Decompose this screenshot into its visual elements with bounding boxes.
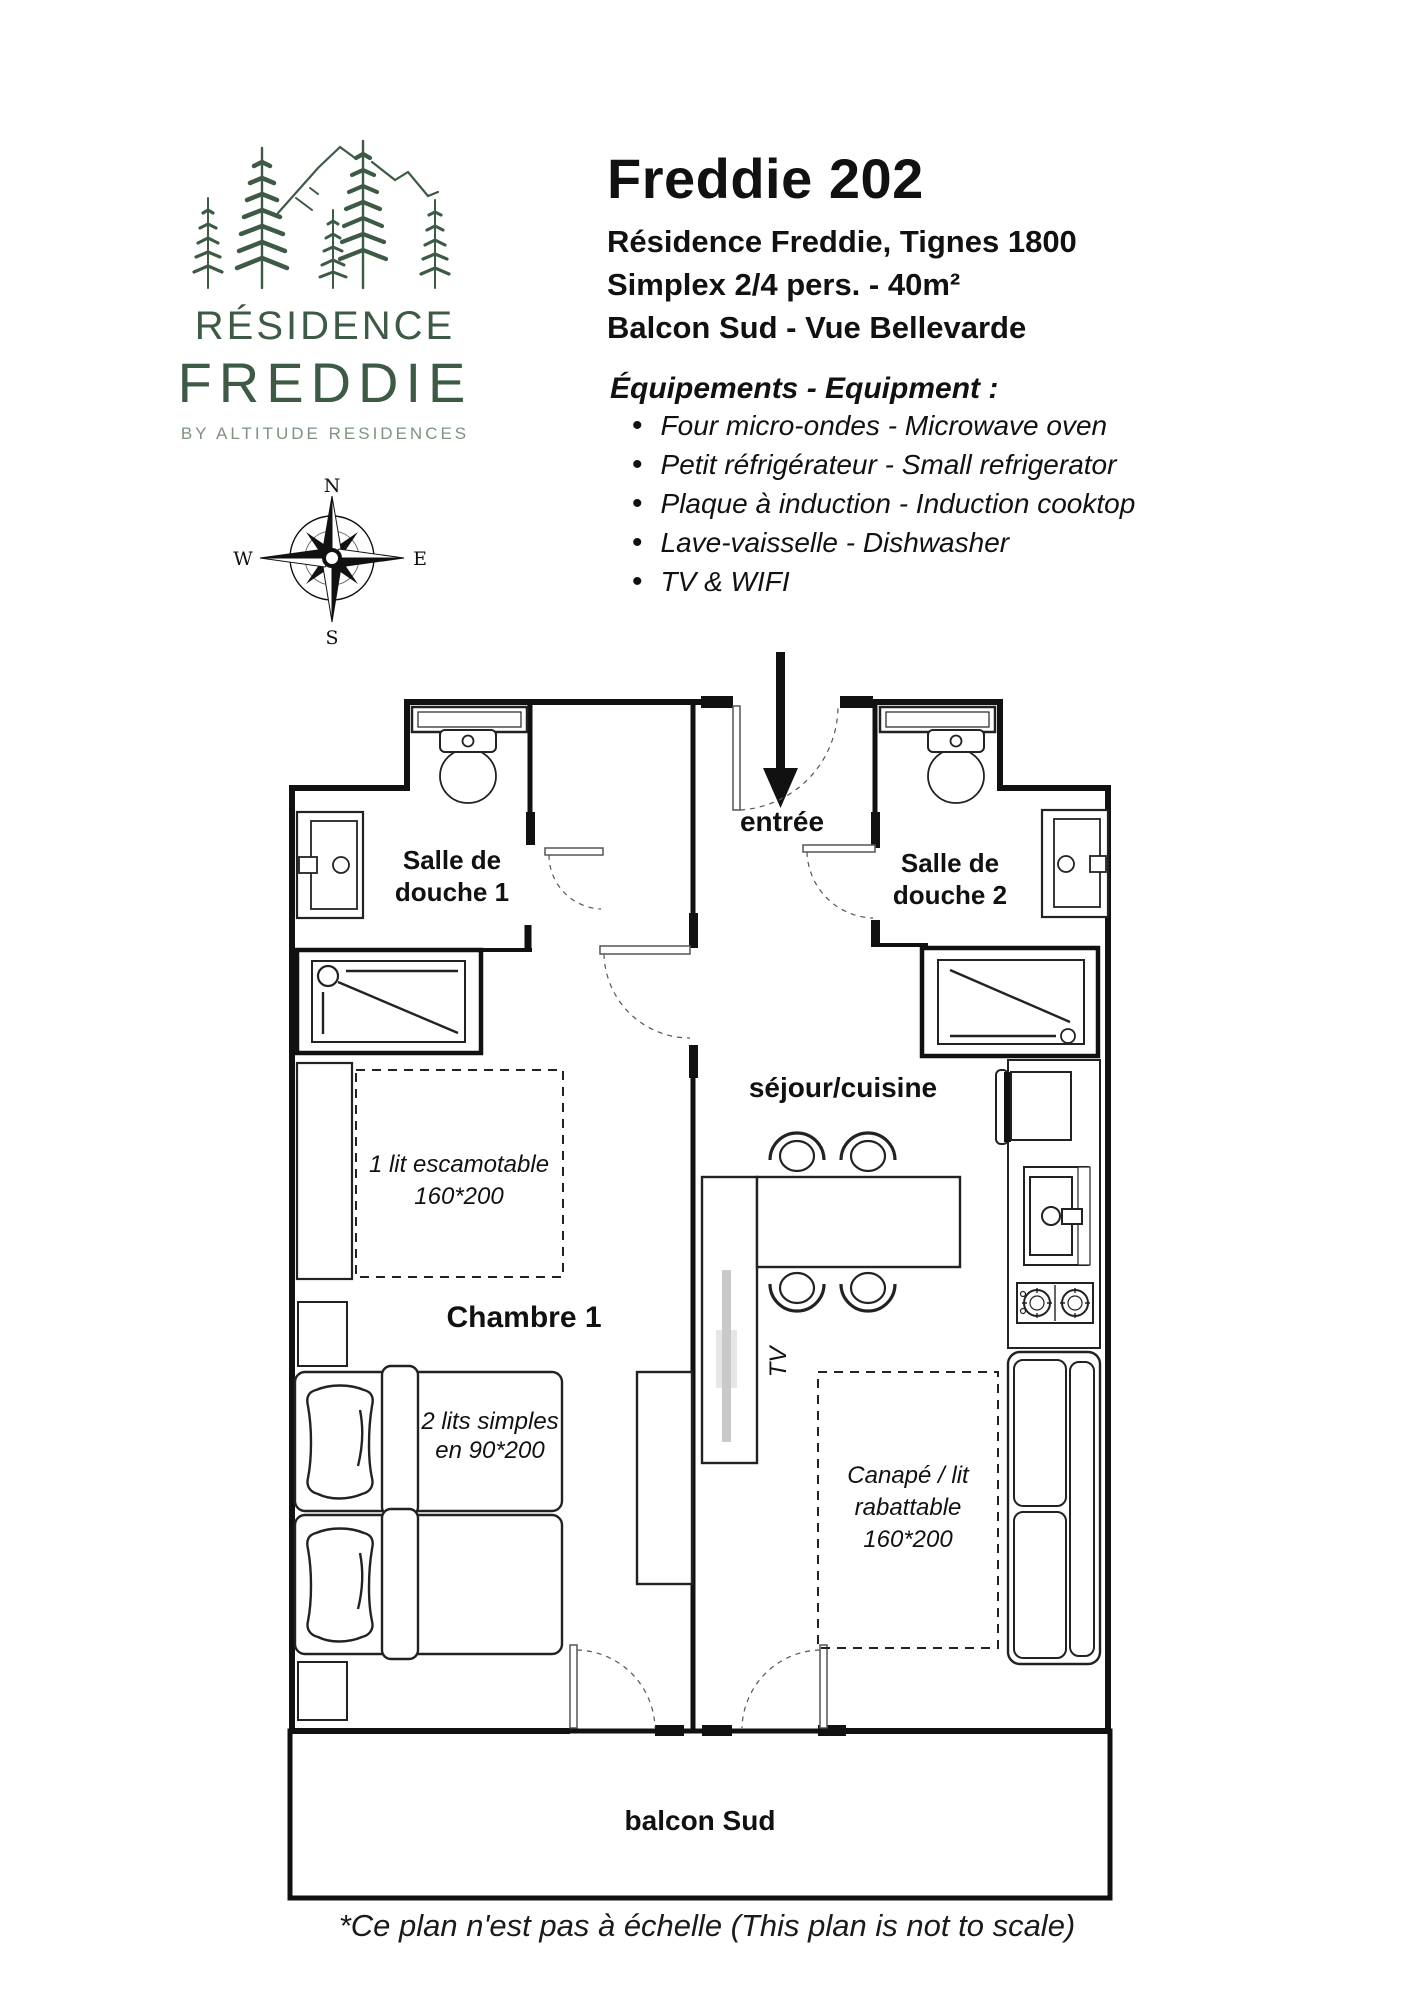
label-balcon-sud: balcon Sud (625, 1805, 776, 1836)
tv-cabinet (702, 1177, 757, 1463)
sink-1 (297, 812, 363, 918)
pillow (307, 1529, 372, 1642)
tv-screen (722, 1270, 731, 1442)
label-sejour-cuisine: séjour/cuisine (749, 1072, 937, 1103)
label-douche2-line2: douche 2 (893, 880, 1007, 910)
douche2-door (803, 845, 875, 918)
chair-icon (841, 1273, 895, 1311)
shower-1 (297, 950, 481, 1053)
compass-center-ring (324, 550, 340, 566)
label-douche1-line2: douche 1 (395, 877, 509, 907)
chambre-door (600, 946, 690, 1038)
scale-disclaimer: *Ce plan n'est pas à échelle (This plan … (0, 1908, 1414, 1944)
shower-2 (922, 948, 1098, 1056)
floorplan-drawing: N W E S (0, 0, 1414, 2000)
mountain-slope-marks (296, 188, 318, 210)
single-bed-2 (295, 1509, 562, 1659)
kitchen (996, 1060, 1100, 1348)
label-canape-line2: rabattable (855, 1494, 962, 1521)
balcony-door-chambre (570, 1645, 655, 1728)
wardrobe (297, 1063, 352, 1279)
label-douche2-line1: Salle de (901, 848, 999, 878)
shelf-inner (886, 712, 989, 727)
label-douche1-line1: Salle de (403, 845, 501, 875)
compass-west-label: W (233, 548, 253, 570)
label-canape-line3: 160*200 (863, 1526, 953, 1553)
label-canape-line1: Canapé / lit (847, 1462, 970, 1489)
label-lits-simples-line1: 2 lits simples (420, 1408, 558, 1435)
label-lit-escamotable-line2: 160*200 (414, 1183, 504, 1210)
sink-2 (1042, 810, 1108, 917)
logo-trees-mountain-illustration (194, 141, 449, 288)
induction-cooktop (1017, 1283, 1093, 1323)
sofa (1008, 1352, 1100, 1664)
chair-icon (770, 1133, 824, 1171)
label-tv: TV (765, 1345, 792, 1378)
label-entree: entrée (740, 806, 824, 837)
dining-table (757, 1177, 960, 1267)
compass-east-label: E (413, 548, 427, 570)
balcony-door-sejour (742, 1645, 827, 1728)
floorplan-page: RÉSIDENCE FREDDIE BY ALTITUDE RESIDENCES… (0, 0, 1414, 2000)
chair-icon (841, 1133, 895, 1171)
compass-north-label: N (324, 475, 341, 497)
entrance-arrow-icon (763, 652, 798, 808)
mountain-ridge-right (372, 162, 438, 196)
fridge (996, 1070, 1071, 1144)
mountain-ridge-left (278, 147, 355, 213)
shelf-inner (418, 712, 521, 727)
toilet-2 (928, 730, 984, 803)
closet (637, 1372, 692, 1584)
toilet-1 (440, 730, 496, 803)
compass-south-label: S (325, 627, 338, 649)
chair-icon (770, 1273, 824, 1311)
pillow (307, 1386, 372, 1499)
label-lits-simples-line2: en 90*200 (435, 1437, 545, 1464)
douche1-door (545, 848, 603, 909)
kitchen-sink (1024, 1167, 1090, 1265)
nightstand (298, 1662, 347, 1720)
nightstand (298, 1302, 347, 1366)
label-chambre1: Chambre 1 (446, 1301, 601, 1334)
label-lit-escamotable-line1: 1 lit escamotable (369, 1151, 549, 1178)
compass-rose-icon: N W E S (233, 475, 427, 649)
